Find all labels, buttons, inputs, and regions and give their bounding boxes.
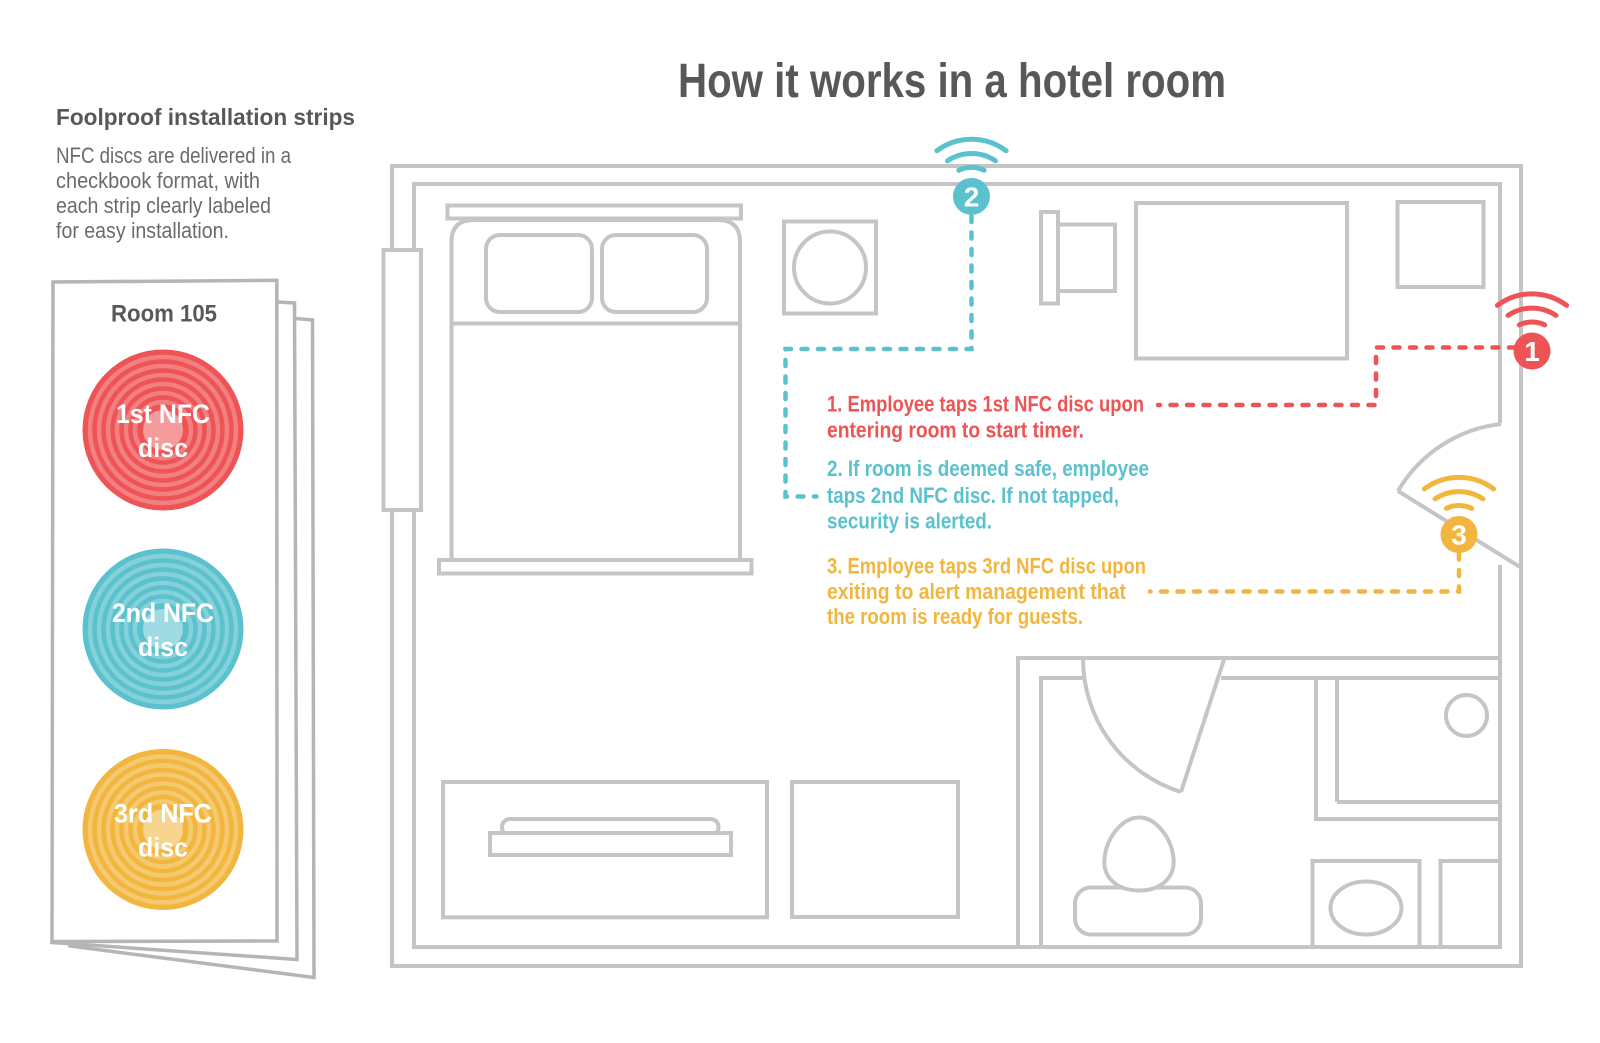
svg-text:How it works in a hotel room: How it works in a hotel room xyxy=(678,55,1226,108)
svg-text:1: 1 xyxy=(1524,336,1540,367)
svg-text:for easy installation.: for easy installation. xyxy=(56,218,229,243)
svg-text:disc: disc xyxy=(138,433,188,463)
svg-text:Room 105: Room 105 xyxy=(111,301,217,328)
svg-text:Foolproof installation strips: Foolproof installation strips xyxy=(56,104,355,130)
svg-text:3rd NFC: 3rd NFC xyxy=(114,799,212,829)
svg-text:disc: disc xyxy=(138,632,188,662)
svg-text:taps 2nd NFC disc. If not tapp: taps 2nd NFC disc. If not tapped, xyxy=(827,483,1119,508)
svg-text:2. If room is deemed safe, emp: 2. If room is deemed safe, employee xyxy=(827,456,1149,481)
svg-text:3. Employee taps 3rd NFC disc: 3. Employee taps 3rd NFC disc upon xyxy=(827,554,1146,579)
svg-text:2nd NFC: 2nd NFC xyxy=(112,598,214,628)
svg-text:disc: disc xyxy=(138,833,188,863)
svg-text:the room is ready for guests.: the room is ready for guests. xyxy=(827,604,1083,629)
svg-text:checkbook format, with: checkbook format, with xyxy=(56,168,260,193)
svg-text:each strip clearly labeled: each strip clearly labeled xyxy=(56,193,271,218)
svg-text:3: 3 xyxy=(1451,520,1467,551)
svg-text:1. Employee taps 1st NFC disc: 1. Employee taps 1st NFC disc upon xyxy=(827,392,1144,417)
svg-text:NFC discs are delivered in a: NFC discs are delivered in a xyxy=(56,143,292,168)
svg-text:1st NFC: 1st NFC xyxy=(116,399,210,429)
svg-text:exiting to alert management th: exiting to alert management that xyxy=(827,579,1127,604)
svg-text:2: 2 xyxy=(964,182,980,213)
svg-text:security is alerted.: security is alerted. xyxy=(827,509,992,534)
svg-text:entering room to start timer.: entering room to start timer. xyxy=(827,418,1084,443)
